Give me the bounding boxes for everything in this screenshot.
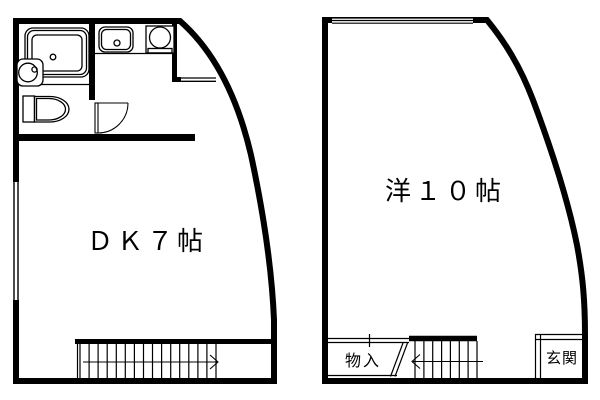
staircase-icon <box>409 339 483 379</box>
washbasin-icon <box>17 59 43 86</box>
stove-icon <box>146 26 174 53</box>
left-unit-plan: ＤＫ７帖 <box>12 18 274 381</box>
toilet-icon <box>23 96 69 122</box>
right-unit-plan: 物入 玄関 洋１０帖 <box>322 17 585 382</box>
closet-label: 物入 <box>345 352 381 370</box>
kitchen-sink-icon <box>99 27 133 52</box>
window-icon <box>12 182 20 300</box>
left-arrow-icon <box>412 355 483 369</box>
entrance-label: 玄関 <box>546 350 578 367</box>
staircase-icon <box>75 342 271 380</box>
entrance-box: 玄関 <box>535 334 584 378</box>
door-swing-icon <box>95 103 128 133</box>
room-label: ＤＫ７帖 <box>87 226 207 256</box>
closet-box: 物入 <box>322 334 409 377</box>
floor-plan-image: ＤＫ７帖 物入 <box>0 0 600 400</box>
floor-plan-canvas: ＤＫ７帖 物入 <box>0 0 600 400</box>
balcony-wall-stub <box>172 77 181 82</box>
room-label: 洋１０帖 <box>385 176 505 206</box>
window-icon <box>332 17 473 25</box>
window-icon <box>181 78 216 81</box>
